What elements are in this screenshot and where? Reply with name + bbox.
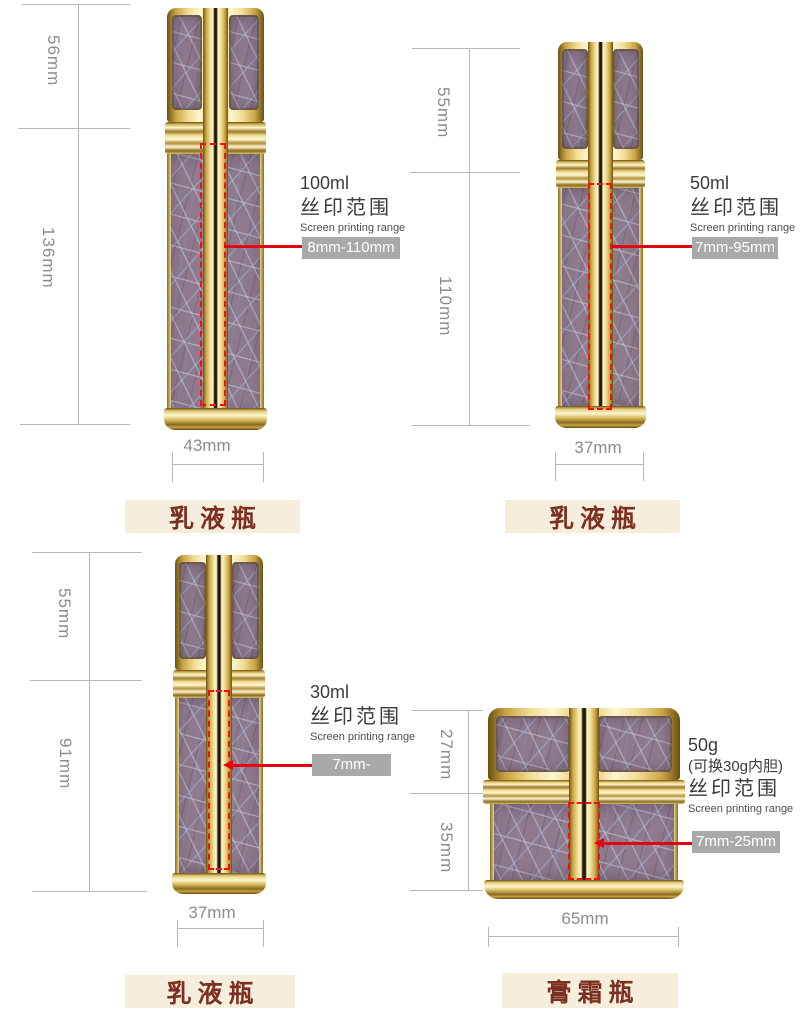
- dim-tick: [410, 793, 483, 794]
- cap-height-dim-label: 55mm: [433, 87, 453, 138]
- dim-tick: [643, 452, 644, 481]
- lid-panel: [598, 716, 672, 772]
- dim-tick: [410, 890, 483, 891]
- category-label: 乳液瓶: [125, 500, 300, 533]
- category-label: 乳液瓶: [505, 500, 680, 533]
- dim-tick: [172, 452, 173, 482]
- dim-tick: [30, 680, 142, 681]
- dim-tick: [412, 710, 483, 711]
- width-dim-label: 65mm: [550, 909, 620, 929]
- width-dim-label: 43mm: [172, 436, 242, 456]
- cap-panel: [172, 15, 202, 110]
- dim-tick: [18, 128, 130, 129]
- category-label: 乳液瓶: [125, 975, 295, 1008]
- print-range-label-cn: 丝印范围: [688, 776, 793, 802]
- dim-line-vertical: [469, 48, 470, 425]
- print-range-badge: 7mm-70mm: [312, 754, 391, 776]
- dim-line-width: [555, 464, 643, 465]
- dim-tick: [32, 552, 142, 553]
- print-range-label-en: Screen printing range: [310, 730, 415, 745]
- body-height-dim-label: 35mm: [436, 822, 456, 873]
- dim-line-vertical: [78, 4, 79, 424]
- bottle-base: [172, 873, 266, 894]
- dim-line-width: [488, 936, 678, 937]
- dim-line-width: [177, 928, 263, 929]
- dim-tick: [263, 452, 264, 482]
- leader-line: [224, 245, 302, 248]
- leader-line: [612, 245, 692, 248]
- dim-tick: [20, 424, 130, 425]
- body-height-dim-label: 91mm: [55, 738, 75, 789]
- print-range-badge: 7mm-95mm: [692, 237, 778, 259]
- cap-panel: [562, 49, 588, 149]
- print-annotation: 50g (可换30g内胆) 丝印范围 Screen printing range: [688, 734, 793, 817]
- cap-panel: [232, 562, 259, 659]
- cap-height-dim-label: 55mm: [54, 588, 74, 639]
- category-label: 膏霜瓶: [502, 973, 678, 1008]
- cap-height-dim-label: 56mm: [43, 35, 63, 86]
- dim-tick: [22, 4, 130, 5]
- dim-tick: [488, 927, 489, 947]
- jar-base: [484, 880, 684, 899]
- print-range-badge: 8mm-110mm: [302, 237, 400, 259]
- volume-note: (可换30g内胆): [688, 757, 793, 776]
- print-area-outline: [208, 690, 230, 870]
- lid-height-dim-label: 27mm: [436, 729, 456, 780]
- width-dim-label: 37mm: [563, 438, 633, 458]
- lid-panel: [496, 716, 570, 772]
- print-range-label-en: Screen printing range: [690, 221, 795, 236]
- dim-tick: [263, 920, 264, 947]
- volume-label: 50g: [688, 734, 793, 757]
- dim-tick: [412, 425, 530, 426]
- body-height-dim-label: 110mm: [435, 276, 455, 336]
- packaging-spec-sheet: 56mm 136mm 100ml 丝印范围 Screen printing ra…: [0, 0, 800, 1026]
- dim-line-vertical: [468, 710, 469, 890]
- cap-panel: [229, 15, 259, 110]
- print-area-outline: [588, 183, 612, 410]
- print-range-label-cn: 丝印范围: [310, 704, 415, 730]
- volume-label: 30ml: [310, 681, 415, 704]
- dim-tick: [177, 920, 178, 947]
- print-range-label-cn: 丝印范围: [690, 195, 795, 221]
- print-range-label-en: Screen printing range: [300, 221, 405, 236]
- print-annotation: 50ml 丝印范围 Screen printing range: [690, 172, 795, 236]
- dim-tick: [555, 452, 556, 481]
- cap-panel: [179, 562, 206, 659]
- print-range-badge: 7mm-25mm: [692, 831, 780, 853]
- leader-line: [603, 842, 692, 845]
- dim-line-vertical: [89, 552, 90, 892]
- cap-panel: [613, 49, 639, 149]
- dim-line-width: [172, 464, 263, 465]
- print-range-label-cn: 丝印范围: [300, 195, 405, 221]
- dim-tick: [412, 48, 520, 49]
- volume-label: 100ml: [300, 172, 405, 195]
- print-range-label-en: Screen printing range: [688, 802, 793, 817]
- dim-tick: [678, 927, 679, 947]
- bottle-base: [164, 408, 267, 430]
- body-height-dim-label: 136mm: [38, 227, 58, 289]
- width-dim-label: 37mm: [177, 903, 247, 923]
- dim-tick: [410, 172, 520, 173]
- leader-line: [232, 764, 312, 767]
- volume-label: 50ml: [690, 172, 795, 195]
- print-annotation: 100ml 丝印范围 Screen printing range: [300, 172, 405, 236]
- dim-tick: [32, 891, 147, 892]
- print-area-outline: [200, 143, 226, 406]
- print-annotation: 30ml 丝印范围 Screen printing range: [310, 681, 415, 745]
